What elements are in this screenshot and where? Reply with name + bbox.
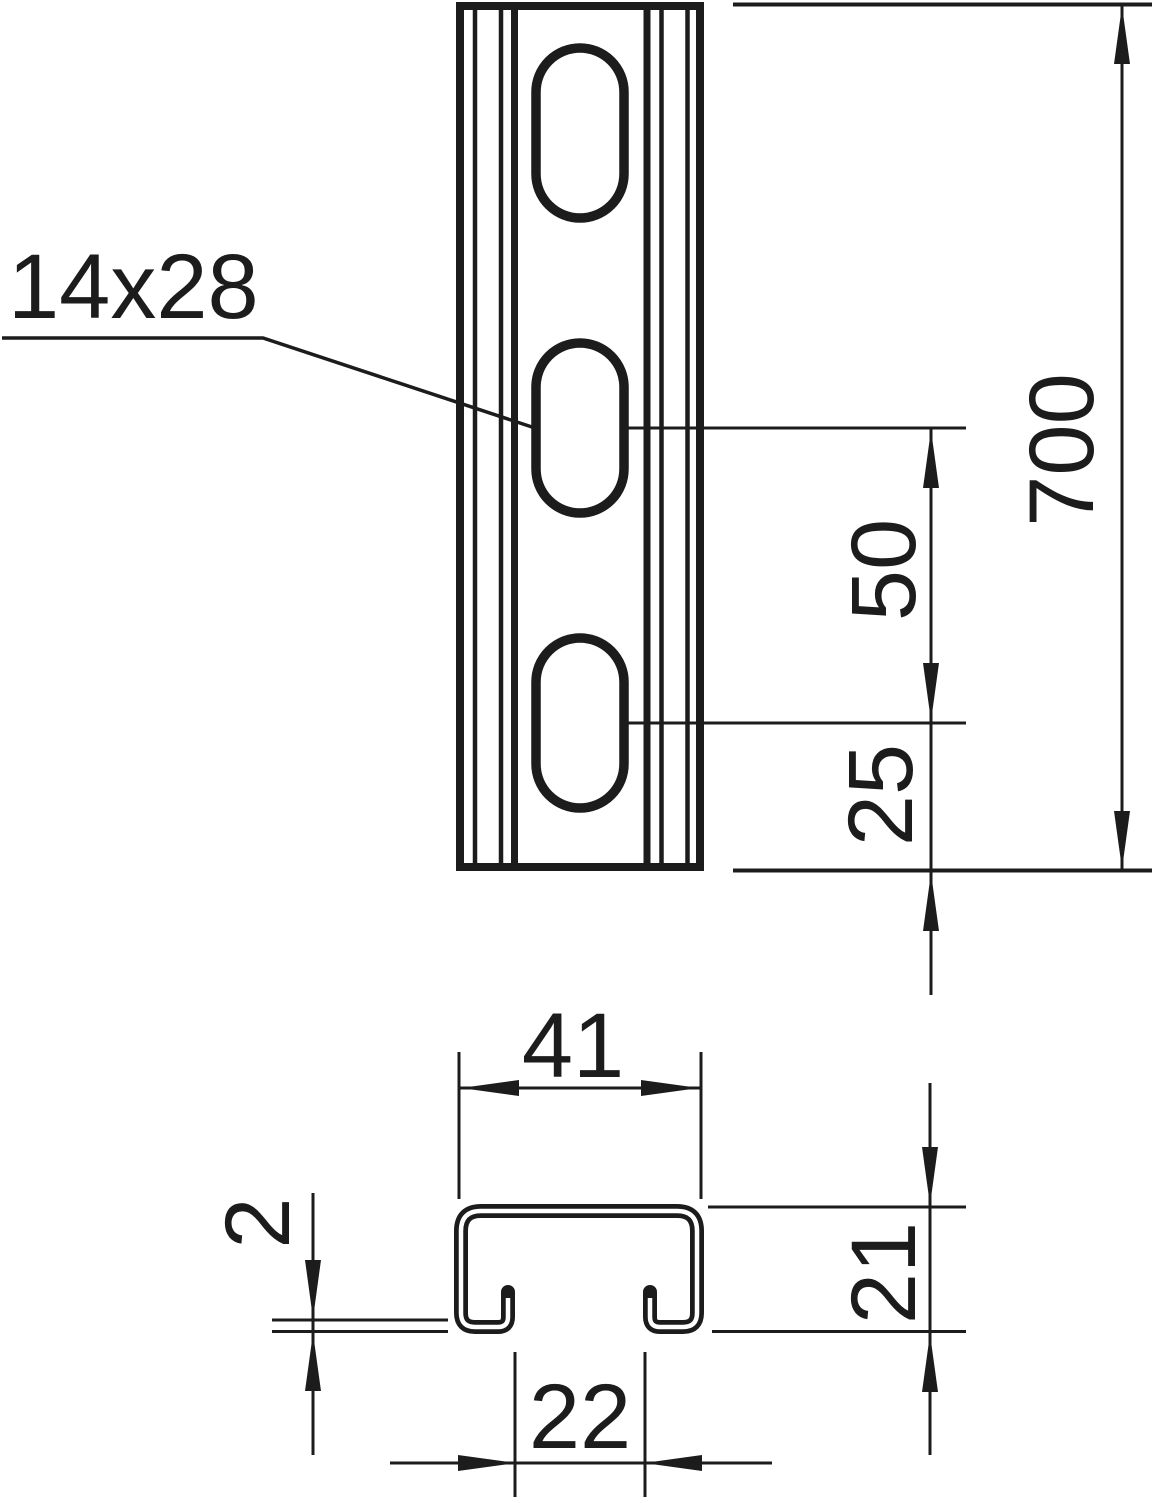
section-profile-inner	[461, 1211, 697, 1327]
dim-2-arrow-down	[305, 1260, 321, 1319]
dim-700-label: 700	[1011, 373, 1113, 527]
slot-size-callout: 14x28	[2, 236, 535, 428]
dim-700-arrow-down	[1114, 811, 1130, 869]
slot-hole-2	[536, 343, 624, 513]
drawing-canvas: 14x28 700 50 25 41	[0, 0, 1158, 1500]
dim-41-arrow-right	[641, 1080, 699, 1096]
dim-end-offset-25: 25	[830, 723, 939, 995]
dim-25-arrow-up	[923, 873, 939, 931]
dim-22-arrow-right	[458, 1455, 516, 1471]
dim-50-arrow-down	[923, 663, 939, 721]
dim-length-700: 700	[733, 5, 1152, 871]
dim-21-arrow-down	[922, 1147, 938, 1205]
dim-25-label: 25	[830, 744, 932, 846]
dim-height-21: 21	[708, 1083, 966, 1455]
dim-pitch-50: 50	[620, 428, 966, 723]
dim-700-arrow-up	[1114, 6, 1130, 64]
dim-opening-22: 22	[390, 1352, 772, 1497]
dim-21-arrow-up	[922, 1334, 938, 1392]
rail-outline	[460, 6, 700, 867]
slot-hole-3	[536, 638, 624, 808]
slot-size-leader-line	[2, 338, 535, 428]
dim-2-arrow-up	[305, 1333, 321, 1391]
dim-thickness-2: 2	[207, 1193, 448, 1455]
dim-2-label: 2	[207, 1197, 309, 1248]
section-view	[461, 1211, 697, 1327]
dim-width-41: 41	[459, 995, 701, 1199]
dim-50-arrow-up	[923, 430, 939, 488]
dim-50-label: 50	[833, 519, 935, 621]
dim-22-label: 22	[529, 1366, 631, 1468]
dim-41-arrow-left	[461, 1080, 519, 1096]
slot-size-label: 14x28	[8, 236, 259, 338]
dim-41-label: 41	[522, 995, 624, 1097]
section-profile-outer	[461, 1211, 697, 1327]
dim-21-label: 21	[833, 1222, 935, 1324]
front-view	[460, 6, 700, 867]
dim-22-arrow-left	[644, 1455, 702, 1471]
drawing-page: 14x28 700 50 25 41	[0, 0, 1158, 1500]
slot-hole-1	[536, 48, 624, 218]
